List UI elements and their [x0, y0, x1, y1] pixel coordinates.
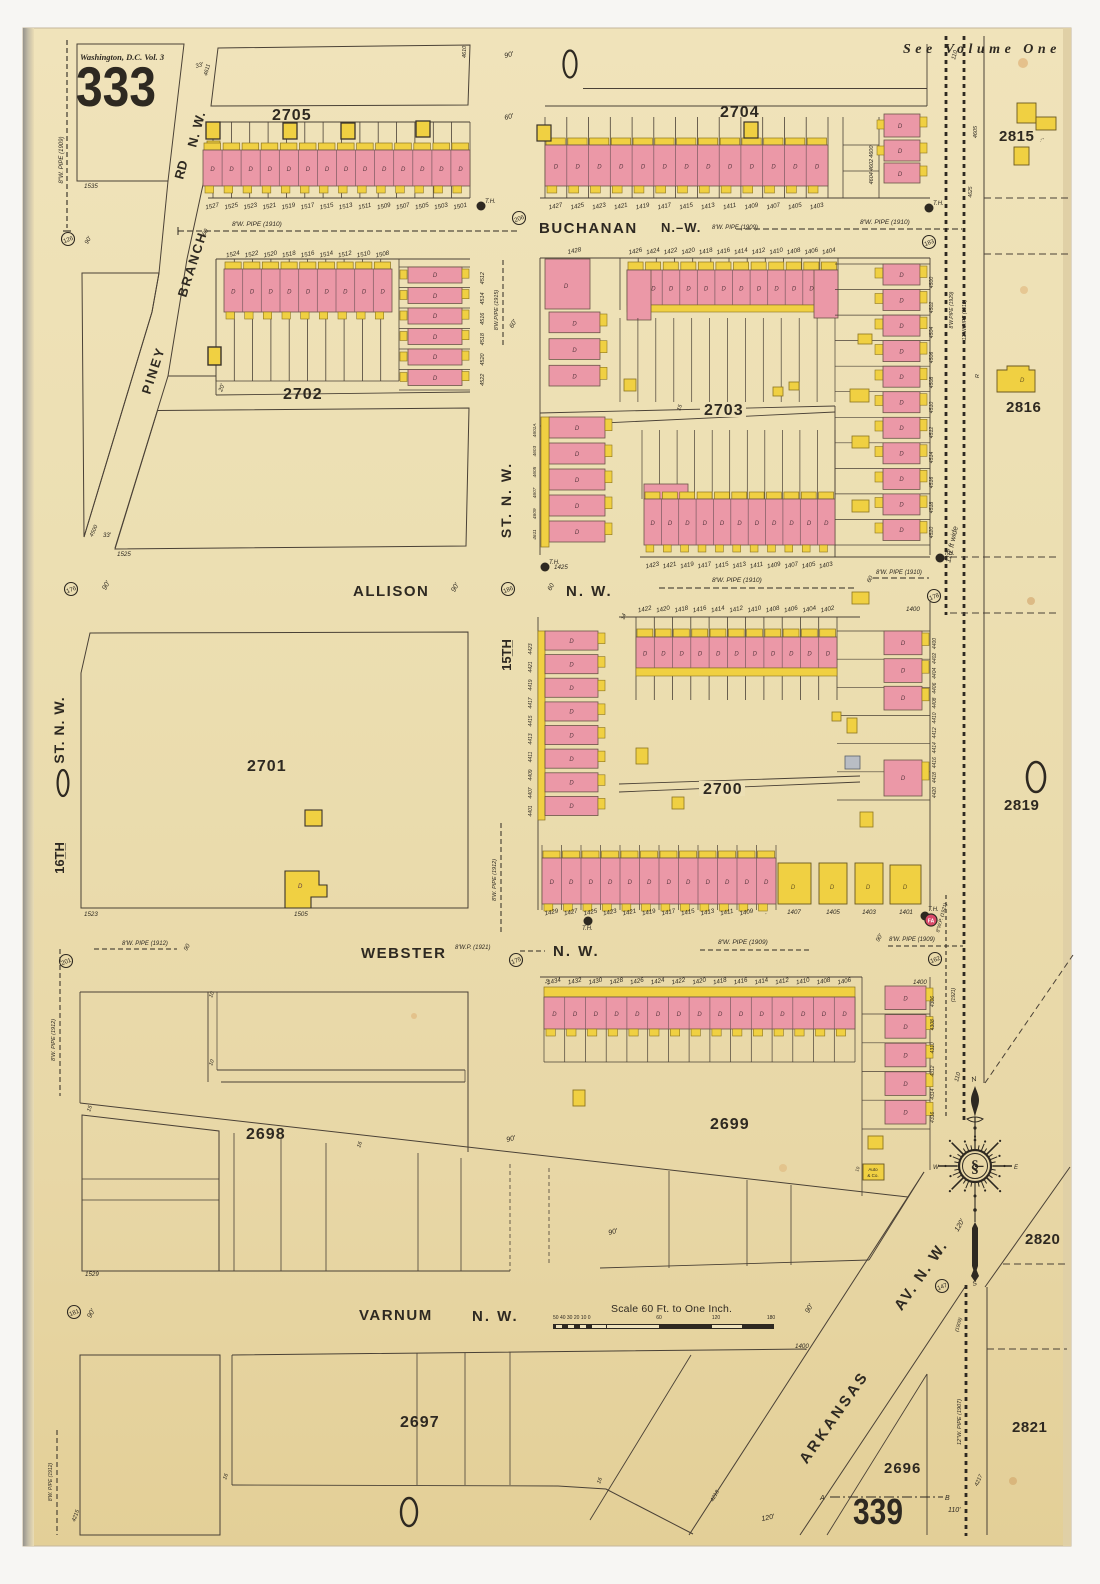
svg-text:D: D — [667, 880, 672, 886]
svg-text:N. W.: N. W. — [566, 583, 613, 600]
svg-text:D: D — [706, 165, 711, 171]
svg-text:4402: 4402 — [932, 653, 938, 664]
svg-text:BUCHANAN: BUCHANAN — [539, 220, 638, 237]
svg-text:R: R — [975, 374, 981, 378]
svg-text:1525: 1525 — [117, 551, 131, 558]
svg-text:D: D — [755, 521, 760, 527]
svg-text:D: D — [728, 165, 733, 171]
svg-text:4605: 4605 — [973, 125, 979, 138]
svg-text:D: D — [614, 1012, 619, 1018]
svg-text:D: D — [641, 165, 646, 171]
svg-text:4421: 4421 — [528, 661, 534, 672]
svg-text:Auto: Auto — [868, 1167, 878, 1172]
svg-text:D: D — [822, 1012, 827, 1018]
svg-text:8′W. PIPE (1912): 8′W. PIPE (1912) — [122, 941, 168, 947]
svg-text:8′W. PIPE (1909): 8′W. PIPE (1909) — [718, 939, 768, 946]
svg-text:1523: 1523 — [84, 911, 98, 918]
svg-text:D: D — [458, 167, 463, 173]
svg-text:D: D — [722, 287, 727, 293]
svg-text:D: D — [824, 521, 829, 527]
svg-text:8′W. PIPE (1910): 8′W. PIPE (1910) — [712, 577, 762, 584]
svg-text:8′W.P. (1921): 8′W.P. (1921) — [455, 945, 490, 951]
svg-text:4413: 4413 — [528, 733, 534, 744]
svg-text:8′W. PIPE (1909): 8′W. PIPE (1909) — [712, 225, 758, 231]
svg-text:4604: 4604 — [869, 172, 875, 184]
svg-text:D: D — [231, 290, 236, 296]
svg-text:D: D — [898, 172, 903, 178]
svg-text:1529: 1529 — [85, 1271, 99, 1278]
svg-text:D: D — [739, 1012, 744, 1018]
svg-text:D: D — [899, 349, 904, 355]
svg-text:D: D — [325, 290, 330, 296]
svg-text:D: D — [575, 478, 580, 484]
svg-text:4518: 4518 — [480, 332, 486, 345]
svg-text:1400: 1400 — [913, 979, 927, 986]
svg-text:T.H.: T.H. — [933, 201, 944, 207]
svg-text:4516: 4516 — [480, 312, 486, 325]
svg-text:D: D — [569, 804, 574, 810]
svg-text:D: D — [439, 167, 444, 173]
svg-text:D: D — [287, 167, 292, 173]
svg-text:D: D — [697, 1012, 702, 1018]
svg-text:ALLISON: ALLISON — [353, 583, 429, 600]
svg-text:D: D — [899, 477, 904, 483]
svg-text:15T̲H̲: 15T̲H̲ — [499, 639, 514, 671]
svg-text:D: D — [668, 521, 673, 527]
svg-text:D: D — [572, 375, 577, 381]
svg-text:D: D — [899, 273, 904, 279]
svg-text:D: D — [597, 165, 602, 171]
svg-text:4401: 4401 — [528, 805, 534, 816]
svg-text:4410: 4410 — [932, 712, 938, 723]
svg-text:D: D — [575, 530, 580, 536]
svg-text:D: D — [899, 503, 904, 509]
svg-text:D: D — [901, 696, 906, 702]
svg-text:4605: 4605 — [532, 466, 538, 477]
svg-text:D: D — [901, 776, 906, 782]
svg-text:D: D — [269, 290, 274, 296]
svg-text:4512: 4512 — [929, 427, 935, 439]
svg-text:4602: 4602 — [869, 159, 875, 171]
svg-text:D: D — [569, 686, 574, 692]
svg-text:D: D — [684, 165, 689, 171]
svg-text:2819: 2819 — [1004, 797, 1039, 814]
svg-text:16T̲H̲: 16T̲H̲ — [52, 842, 67, 874]
svg-text:D: D — [901, 641, 906, 647]
svg-text:4408: 4408 — [932, 697, 938, 708]
svg-text:D: D — [669, 287, 674, 293]
svg-text:D: D — [801, 1012, 806, 1018]
svg-text:2705: 2705 — [272, 107, 312, 124]
svg-text:120: 120 — [712, 1315, 721, 1321]
svg-text:8′W. PIPE (1910): 8′W. PIPE (1910) — [232, 221, 282, 228]
svg-text:D: D — [569, 757, 574, 763]
svg-text:D: D — [569, 880, 574, 886]
svg-text:8′W. PIPE (1912): 8′W. PIPE (1912) — [51, 1019, 57, 1061]
svg-text:T.H.: T.H. — [582, 926, 593, 932]
svg-text:4306: 4306 — [930, 996, 936, 1007]
svg-text:4600: 4600 — [869, 145, 875, 158]
svg-text:D: D — [575, 452, 580, 458]
svg-text:D: D — [903, 996, 908, 1002]
svg-text:D: D — [343, 290, 348, 296]
svg-text:33′: 33′ — [103, 533, 112, 539]
svg-text:D: D — [635, 1012, 640, 1018]
svg-text:D: D — [569, 662, 574, 668]
svg-text:2697: 2697 — [400, 1414, 440, 1431]
svg-text:D: D — [287, 290, 292, 296]
svg-text:D: D — [572, 348, 577, 354]
svg-text:D: D — [268, 167, 273, 173]
svg-text:D: D — [608, 880, 613, 886]
svg-text:D: D — [780, 1012, 785, 1018]
svg-text:WEBSTER: WEBSTER — [361, 945, 447, 962]
svg-text:D: D — [704, 287, 709, 293]
svg-text:D: D — [382, 167, 387, 173]
svg-text:2816: 2816 — [1006, 399, 1041, 416]
svg-text:D: D — [656, 1012, 661, 1018]
svg-text:D: D — [619, 165, 624, 171]
svg-text:D: D — [325, 167, 330, 173]
svg-text:8′W. PIPE (1910): 8′W. PIPE (1910) — [860, 219, 910, 226]
svg-text:4406: 4406 — [932, 682, 938, 693]
svg-text:T.H.: T.H. — [928, 907, 939, 913]
svg-text:8′W. PIPE (1912): 8′W. PIPE (1912) — [492, 859, 498, 901]
svg-text:60: 60 — [656, 1315, 662, 1321]
svg-text:4500: 4500 — [929, 277, 935, 289]
svg-text:4502: 4502 — [929, 302, 935, 314]
svg-text:D: D — [807, 521, 812, 527]
svg-text:D: D — [771, 652, 776, 658]
svg-text:A: A — [819, 1495, 825, 1502]
svg-text:2696: 2696 — [884, 1460, 921, 1477]
svg-text:ST. N. W.: ST. N. W. — [498, 462, 514, 538]
svg-text:D: D — [564, 284, 569, 290]
svg-text:D: D — [760, 1012, 765, 1018]
svg-text:T.H.: T.H. — [485, 199, 496, 205]
svg-text:D: D — [830, 885, 835, 891]
svg-text:4514: 4514 — [929, 452, 935, 464]
svg-text:4610: 4610 — [462, 45, 468, 58]
svg-text:D: D — [663, 165, 668, 171]
svg-text:D: D — [576, 165, 581, 171]
svg-text:4506: 4506 — [929, 352, 935, 364]
svg-text:D: D — [750, 165, 755, 171]
svg-text:4518: 4518 — [929, 502, 935, 514]
svg-text:D: D — [745, 880, 750, 886]
svg-text:2704: 2704 — [720, 104, 760, 121]
svg-text:D: D — [899, 401, 904, 407]
svg-text:D: D — [433, 335, 438, 341]
svg-text:4400: 4400 — [932, 638, 938, 649]
svg-text:D: D — [899, 375, 904, 381]
svg-text:D: D — [903, 1054, 908, 1060]
svg-text:4308: 4308 — [930, 1019, 936, 1030]
svg-text:2698: 2698 — [246, 1126, 286, 1143]
svg-text:50 40 30 20 10 0: 50 40 30 20 10 0 — [553, 1315, 591, 1321]
svg-text:D: D — [569, 733, 574, 739]
svg-text:2701: 2701 — [247, 758, 287, 775]
svg-text:D: D — [575, 504, 580, 510]
svg-text:FA: FA — [928, 919, 935, 925]
svg-text:D: D — [807, 652, 812, 658]
svg-text:4520: 4520 — [929, 527, 935, 539]
svg-text:4412: 4412 — [932, 727, 938, 738]
svg-text:4419: 4419 — [528, 679, 534, 690]
svg-text:D: D — [898, 149, 903, 155]
svg-text:4416: 4416 — [932, 757, 938, 768]
svg-text:D: D — [734, 652, 739, 658]
svg-text:333: 333 — [76, 55, 156, 118]
svg-text:4414: 4414 — [932, 742, 938, 753]
svg-text:4512: 4512 — [480, 272, 486, 284]
svg-text:D: D — [903, 1025, 908, 1031]
svg-text:4417: 4417 — [528, 697, 534, 708]
svg-text:N. W.: N. W. — [553, 943, 600, 960]
svg-text:1535: 1535 — [84, 183, 98, 190]
svg-text:D: D — [772, 521, 777, 527]
svg-text:4625: 4625 — [968, 186, 974, 197]
svg-text:180: 180 — [767, 1315, 776, 1321]
svg-text:D: D — [250, 290, 255, 296]
svg-text:4504: 4504 — [929, 327, 935, 339]
svg-text:D: D — [757, 287, 762, 293]
svg-text:D: D — [569, 639, 574, 645]
svg-text:4411: 4411 — [528, 751, 534, 762]
svg-text:1400: 1400 — [906, 606, 920, 613]
svg-text:D: D — [903, 1082, 908, 1088]
svg-text:D: D — [433, 273, 438, 279]
svg-text:339: 339 — [853, 1491, 903, 1532]
svg-text:1401: 1401 — [899, 909, 913, 916]
svg-text:D: D — [381, 290, 386, 296]
svg-text:D: D — [725, 880, 730, 886]
svg-text:D: D — [573, 1012, 578, 1018]
svg-text:D: D — [774, 287, 779, 293]
svg-text:4415: 4415 — [528, 715, 534, 726]
svg-text:D: D — [720, 521, 725, 527]
svg-text:4409: 4409 — [528, 769, 534, 780]
svg-text:D: D — [344, 167, 349, 173]
svg-text:D: D — [698, 652, 703, 658]
svg-text:D: D — [899, 452, 904, 458]
svg-text:D: D — [686, 880, 691, 886]
svg-text:D: D — [716, 652, 721, 658]
svg-text:D: D — [298, 884, 303, 890]
svg-text:12″W.PIPE (1912): 12″W.PIPE (1912) — [962, 299, 968, 340]
svg-text:D: D — [433, 376, 438, 382]
svg-text:D: D — [554, 165, 559, 171]
svg-text:4404: 4404 — [932, 668, 938, 679]
svg-text:4312: 4312 — [930, 1065, 936, 1076]
svg-text:2703: 2703 — [704, 402, 744, 419]
svg-text:1405: 1405 — [826, 909, 840, 916]
svg-text:D: D — [866, 885, 871, 891]
svg-text:D: D — [686, 287, 691, 293]
svg-text:1505: 1505 — [294, 911, 308, 918]
svg-text:D: D — [661, 652, 666, 658]
svg-text:1425: 1425 — [554, 564, 568, 571]
svg-text:D: D — [791, 885, 796, 891]
svg-text:2821: 2821 — [1012, 1419, 1047, 1436]
svg-text:4316: 4316 — [930, 1112, 936, 1123]
svg-text:D: D — [899, 528, 904, 534]
svg-text:4314: 4314 — [930, 1088, 936, 1099]
svg-text:D: D — [306, 167, 311, 173]
svg-text:D: D — [628, 880, 633, 886]
svg-text:D: D — [685, 521, 690, 527]
svg-text:D: D — [1020, 378, 1025, 384]
svg-text:8′W. PIPE (1912): 8′W. PIPE (1912) — [48, 1463, 54, 1502]
svg-text:D: D — [572, 321, 577, 327]
svg-text:D: D — [643, 652, 648, 658]
svg-text:D: D — [739, 287, 744, 293]
svg-text:1403: 1403 — [862, 909, 876, 916]
svg-text:4423: 4423 — [528, 643, 534, 654]
svg-text:D: D — [826, 652, 831, 658]
svg-text:D: D — [594, 1012, 599, 1018]
svg-text:4522: 4522 — [480, 374, 486, 386]
svg-text:D: D — [706, 880, 711, 886]
svg-text:D: D — [229, 167, 234, 173]
svg-text:D: D — [898, 124, 903, 130]
svg-text:4603: 4603 — [532, 446, 538, 457]
svg-text:D: D — [433, 355, 438, 361]
svg-text:D: D — [589, 880, 594, 886]
svg-text:4520: 4520 — [480, 352, 486, 365]
svg-text:4611: 4611 — [532, 529, 538, 540]
svg-text:4601A: 4601A — [532, 423, 538, 437]
svg-text:D: D — [210, 167, 215, 173]
svg-text:110′: 110′ — [948, 1507, 961, 1514]
svg-text:& Co.: & Co. — [867, 1173, 878, 1178]
svg-text:D: D — [249, 167, 254, 173]
svg-text:D: D — [433, 294, 438, 300]
svg-text:D: D — [306, 290, 311, 296]
svg-text:4508: 4508 — [929, 377, 935, 389]
svg-text:(1921): (1921) — [951, 987, 957, 1002]
svg-text:8′W. PIPE (1909): 8′W. PIPE (1909) — [889, 937, 935, 943]
svg-text:D: D — [401, 167, 406, 173]
svg-text:4607: 4607 — [532, 487, 538, 498]
svg-text:2699: 2699 — [710, 1116, 750, 1133]
svg-text:2815: 2815 — [999, 128, 1034, 145]
svg-text:2702: 2702 — [283, 386, 323, 403]
svg-text:8′W.PIPE (1915): 8′W.PIPE (1915) — [494, 290, 500, 331]
svg-text:D: D — [903, 885, 908, 891]
svg-text:VARNUM: VARNUM — [359, 1307, 433, 1324]
svg-text:D: D — [903, 1111, 908, 1117]
svg-text:N.–W.: N.–W. — [661, 220, 701, 235]
svg-text:D: D — [569, 781, 574, 787]
svg-text:1407: 1407 — [787, 909, 801, 916]
svg-text:D: D — [737, 521, 742, 527]
svg-text:D: D — [651, 521, 656, 527]
svg-text:4407: 4407 — [528, 787, 534, 798]
svg-text:4609: 4609 — [532, 508, 538, 519]
svg-text:4516: 4516 — [929, 477, 935, 489]
svg-text:D: D — [550, 880, 555, 886]
svg-text:D: D — [680, 652, 685, 658]
svg-text:2700: 2700 — [703, 781, 743, 798]
svg-text:4514: 4514 — [480, 292, 486, 304]
svg-text:N. W.: N. W. — [472, 1308, 519, 1325]
svg-text:D: D — [420, 167, 425, 173]
svg-text:D: D — [899, 298, 904, 304]
svg-text:D: D — [575, 426, 580, 432]
svg-text:12″W. PIPE (1907): 12″W. PIPE (1907) — [957, 1399, 963, 1445]
svg-text:D: D — [789, 652, 794, 658]
svg-text:D: D — [647, 880, 652, 886]
svg-text:D: D — [718, 1012, 723, 1018]
svg-text:D: D — [789, 521, 794, 527]
svg-text:See Volume One: See Volume One — [903, 42, 1061, 57]
svg-text:1400: 1400 — [795, 1343, 809, 1350]
svg-text:8″W. PIPE (1909): 8″W. PIPE (1909) — [59, 137, 65, 184]
svg-text:D: D — [771, 165, 776, 171]
svg-text:D: D — [703, 521, 708, 527]
svg-text:4420: 4420 — [932, 787, 938, 798]
svg-text:D: D — [569, 710, 574, 716]
svg-text:8′W.PIPE (1929): 8′W.PIPE (1929) — [949, 291, 955, 328]
svg-text:4310: 4310 — [930, 1042, 936, 1053]
svg-text:D: D — [651, 287, 656, 293]
svg-text:D: D — [362, 290, 367, 296]
svg-text:Scale 60 Ft. to One Inch.: Scale 60 Ft. to One Inch. — [611, 1303, 732, 1315]
svg-text:4510: 4510 — [929, 402, 935, 414]
svg-text:D: D — [842, 1012, 847, 1018]
svg-text:D: D — [552, 1012, 557, 1018]
svg-text:4418: 4418 — [932, 772, 938, 783]
svg-text:D: D — [764, 880, 769, 886]
svg-text:ST. N. W.: ST. N. W. — [51, 696, 67, 763]
svg-text:D: D — [677, 1012, 682, 1018]
svg-text:D: D — [815, 165, 820, 171]
svg-text:8′W. PIPE (1910): 8′W. PIPE (1910) — [876, 570, 922, 576]
svg-text:D: D — [433, 314, 438, 320]
svg-text:D: D — [363, 167, 368, 173]
svg-text:D: D — [899, 324, 904, 330]
svg-text:D: D — [901, 669, 906, 675]
svg-text:B: B — [945, 1495, 950, 1502]
svg-text:D: D — [753, 652, 758, 658]
svg-text:D: D — [793, 165, 798, 171]
svg-text:D: D — [899, 426, 904, 432]
svg-text:2820: 2820 — [1025, 1231, 1060, 1248]
svg-text:D: D — [792, 287, 797, 293]
